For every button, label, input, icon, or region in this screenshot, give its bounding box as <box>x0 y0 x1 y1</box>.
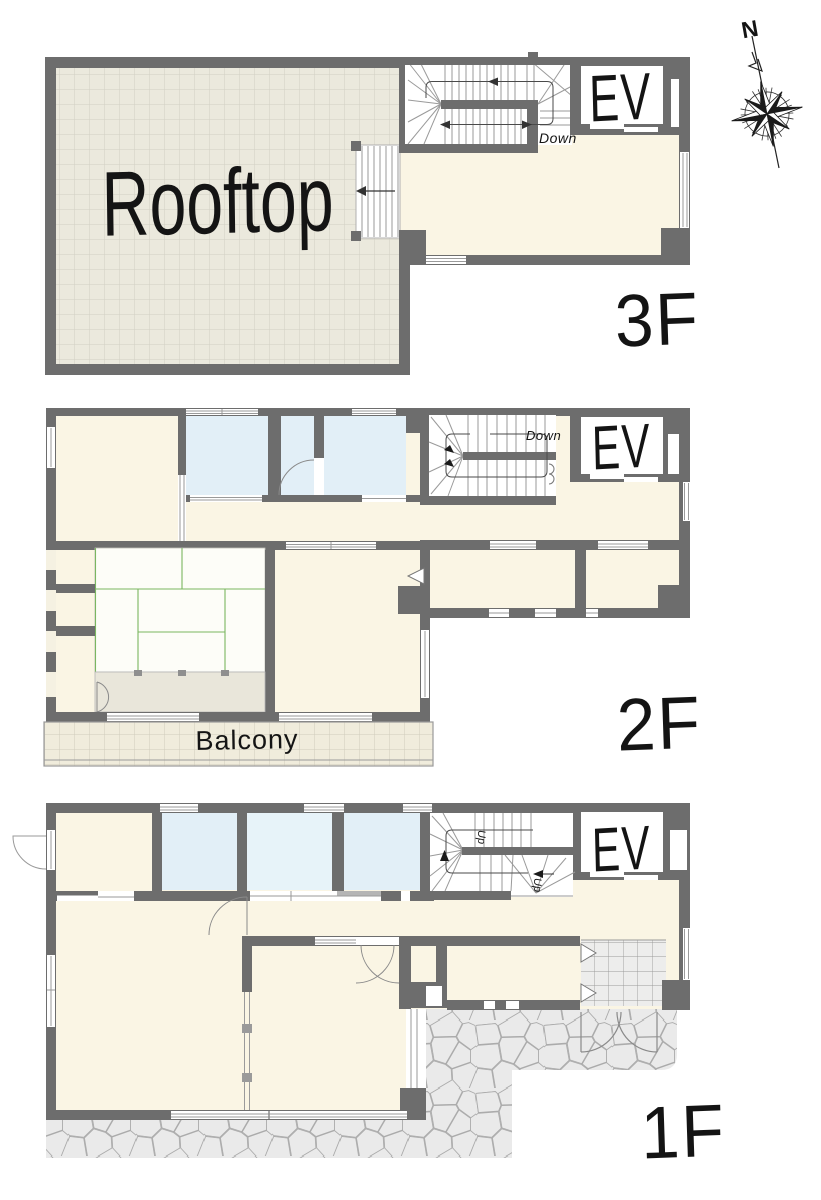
svg-text:Up: Up <box>531 878 543 892</box>
svg-text:2F: 2F <box>615 682 703 768</box>
svg-text:Down: Down <box>526 428 561 443</box>
svg-text:1F: 1F <box>639 1090 727 1176</box>
svg-text:EV: EV <box>591 814 652 886</box>
svg-text:EV: EV <box>588 59 652 136</box>
svg-text:EV: EV <box>591 412 652 484</box>
svg-text:Up: Up <box>475 830 487 844</box>
svg-text:Balcony: Balcony <box>195 724 299 756</box>
svg-text:3F: 3F <box>613 278 701 364</box>
svg-text:Rooftop: Rooftop <box>101 146 334 255</box>
